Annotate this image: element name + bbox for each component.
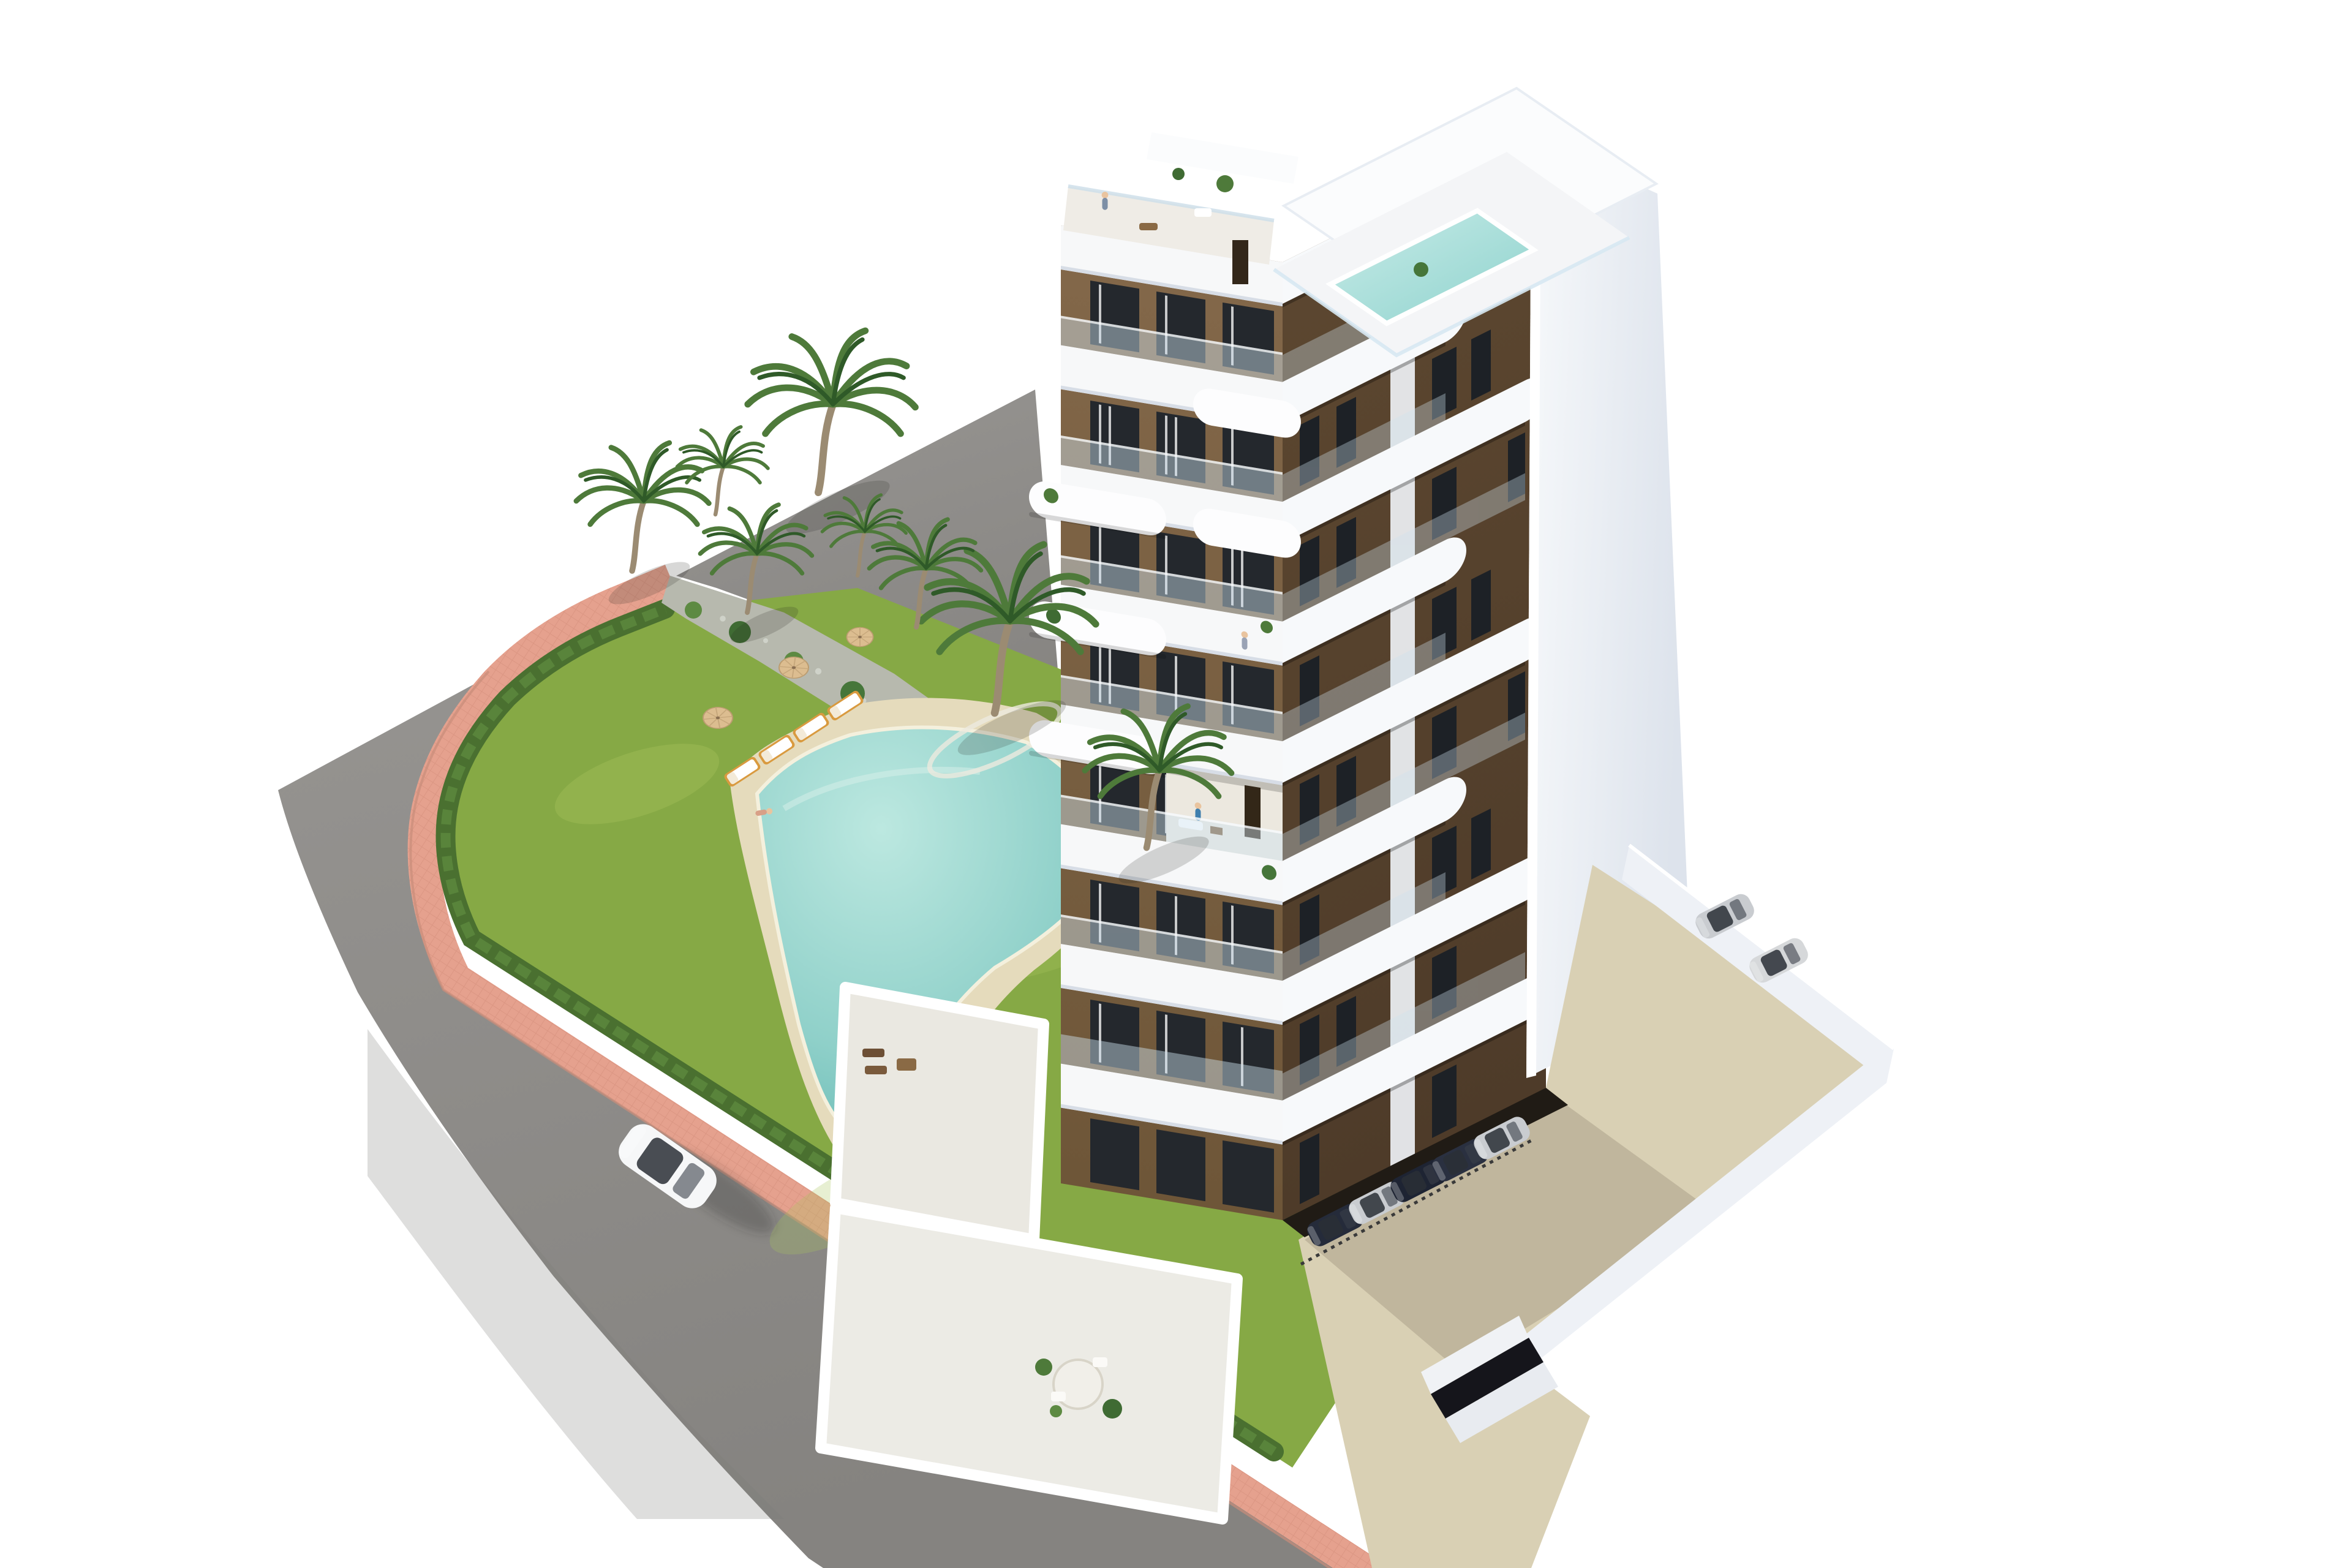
person (1242, 631, 1248, 650)
roof-bench (1139, 223, 1158, 230)
roof-plant (1172, 168, 1185, 180)
render-canvas (0, 0, 2352, 1568)
potted-plant (1035, 1359, 1052, 1376)
potted-plant (1050, 1405, 1062, 1417)
roof-chimney (1232, 240, 1248, 284)
outdoor-sofa (862, 1049, 884, 1057)
roof-plant (1414, 262, 1428, 277)
roof-plant (1216, 175, 1234, 192)
wood-table (897, 1058, 916, 1071)
terrace-chair (1093, 1357, 1107, 1367)
palm-tree (677, 427, 768, 514)
roof-sofa (1194, 208, 1212, 217)
architectural-render: Aerial 3D architectural rendering of a m… (0, 0, 2352, 1568)
palm-tree (576, 443, 709, 571)
terrace-chair (1051, 1392, 1066, 1401)
left-facade (1029, 220, 1301, 1223)
parasol (846, 627, 873, 646)
outdoor-sofa (865, 1066, 887, 1074)
person (1102, 192, 1109, 210)
ground-terrace (835, 987, 1044, 1240)
potted-plant (1102, 1399, 1122, 1419)
